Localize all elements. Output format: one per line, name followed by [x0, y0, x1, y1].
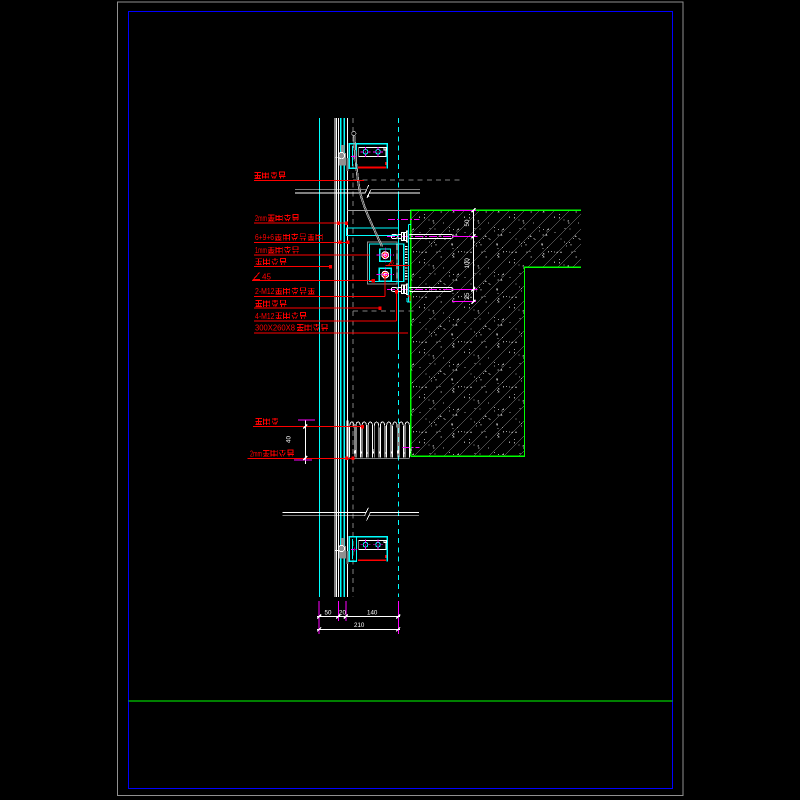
svg-text:50: 50: [464, 219, 471, 226]
svg-text:2mm: 2mm: [250, 448, 262, 458]
svg-text:2-M12: 2-M12: [255, 286, 275, 296]
svg-text:50: 50: [325, 609, 332, 616]
svg-text:140: 140: [367, 609, 378, 616]
svg-text:210: 210: [354, 622, 365, 629]
svg-text:1mm: 1mm: [255, 245, 267, 255]
svg-text:40: 40: [286, 436, 293, 443]
svg-text:2mm: 2mm: [255, 213, 267, 223]
svg-text:6+9+6: 6+9+6: [255, 232, 274, 242]
svg-text:100: 100: [464, 258, 471, 269]
svg-text:300X260X8: 300X260X8: [255, 323, 295, 333]
svg-text:45: 45: [262, 271, 271, 281]
svg-text:4-M12: 4-M12: [255, 311, 275, 321]
svg-text:20: 20: [339, 609, 346, 616]
svg-text:25: 25: [464, 292, 471, 299]
